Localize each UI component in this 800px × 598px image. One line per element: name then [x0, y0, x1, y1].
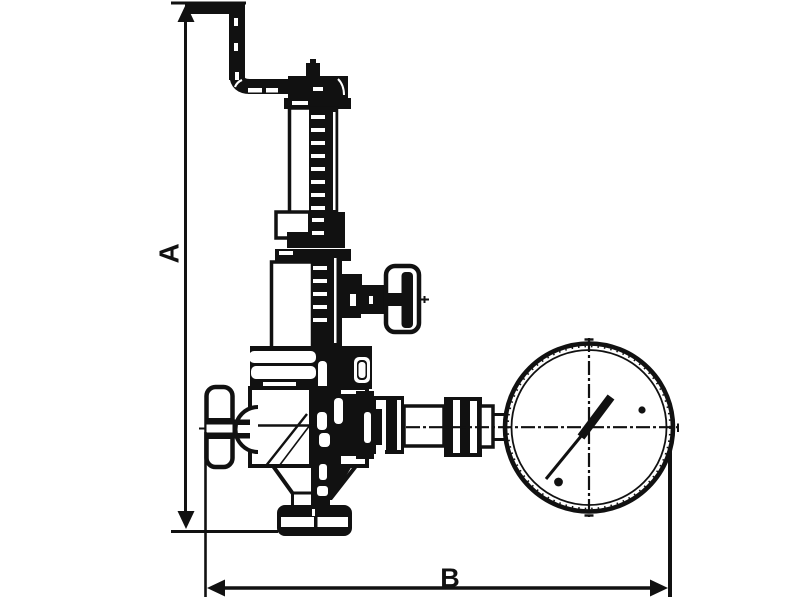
svg-text:B: B [440, 563, 460, 593]
svg-text:A: A [154, 243, 185, 263]
